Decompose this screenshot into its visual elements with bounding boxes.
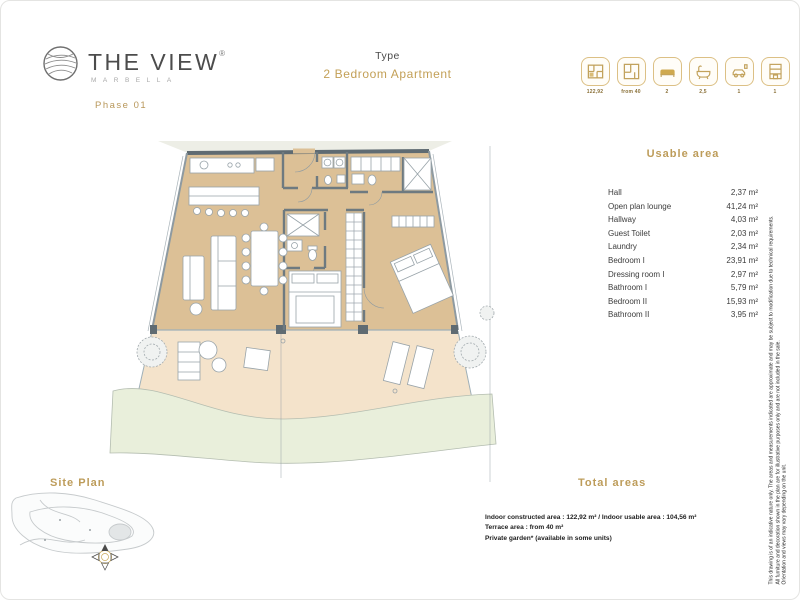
table-row: Bathroom II3,95 m² (608, 308, 758, 322)
car-icon (725, 57, 754, 86)
total-line-garden: Private garden* (available in some units… (485, 534, 785, 544)
total-areas-title: Total areas (578, 477, 646, 489)
phase-label: Phase 01 (95, 100, 147, 111)
table-row: Open plan lounge41,24 m² (608, 200, 758, 214)
spec-constructed-area: 122,92 (580, 57, 610, 95)
bedroom-1-bed (289, 271, 341, 327)
terrace-plan-icon (617, 57, 646, 86)
table-row: Laundry2,34 m² (608, 240, 758, 254)
globe-icon (42, 45, 79, 82)
type-label: Type (290, 50, 485, 62)
storage-icon (761, 57, 790, 86)
table-row: Bedroom II15,93 m² (608, 295, 758, 309)
registered-mark: ® (219, 49, 225, 58)
total-areas-lines: Indoor constructed area : 122,92 m² / In… (485, 513, 785, 544)
usable-area-panel: Usable area Hall2,37 m² Open plan lounge… (608, 148, 758, 322)
brand-logo: THE VIEW® MARBELLA (42, 42, 225, 84)
usable-area-title: Usable area (608, 148, 758, 160)
table-row: Hall2,37 m² (608, 186, 758, 200)
bed-icon (653, 57, 682, 86)
table-row: Dressing room I2,97 m² (608, 268, 758, 282)
site-plan-title: Site Plan (50, 477, 105, 489)
total-line-indoor: Indoor constructed area : 122,92 m² / In… (485, 513, 785, 523)
table-row: Hallway4,03 m² (608, 213, 758, 227)
spec-bedrooms: 2 (652, 57, 682, 95)
table-row: Guest Toilet2,03 m² (608, 227, 758, 241)
spec-storage: 1 (760, 57, 790, 95)
type-value: 2 Bedroom Apartment (290, 67, 485, 81)
spec-bathrooms: 2,5 (688, 57, 718, 95)
brand-subtitle: MARBELLA (88, 77, 225, 84)
spec-icon-row: 122,92 from 40 2 2,5 (580, 57, 790, 95)
floorplan-area-icon (581, 57, 610, 86)
disclaimer-text: This drawing is of an indicative nature … (769, 130, 791, 585)
spec-parking: 1 (724, 57, 754, 95)
table-row: Bedroom I23,91 m² (608, 254, 758, 268)
brand-name: THE VIEW® (88, 42, 225, 74)
table-row: Bathroom I5,79 m² (608, 281, 758, 295)
spec-terrace-area: from 40 (616, 57, 646, 95)
dressing-wardrobe (346, 213, 362, 321)
usable-area-rows: Hall2,37 m² Open plan lounge41,24 m² Hal… (608, 186, 758, 322)
total-line-terrace: Terrace area : from 40 m² (485, 523, 785, 533)
bathtub-icon (689, 57, 718, 86)
type-block: Type 2 Bedroom Apartment (290, 50, 485, 81)
site-plan-sketch (12, 493, 154, 553)
